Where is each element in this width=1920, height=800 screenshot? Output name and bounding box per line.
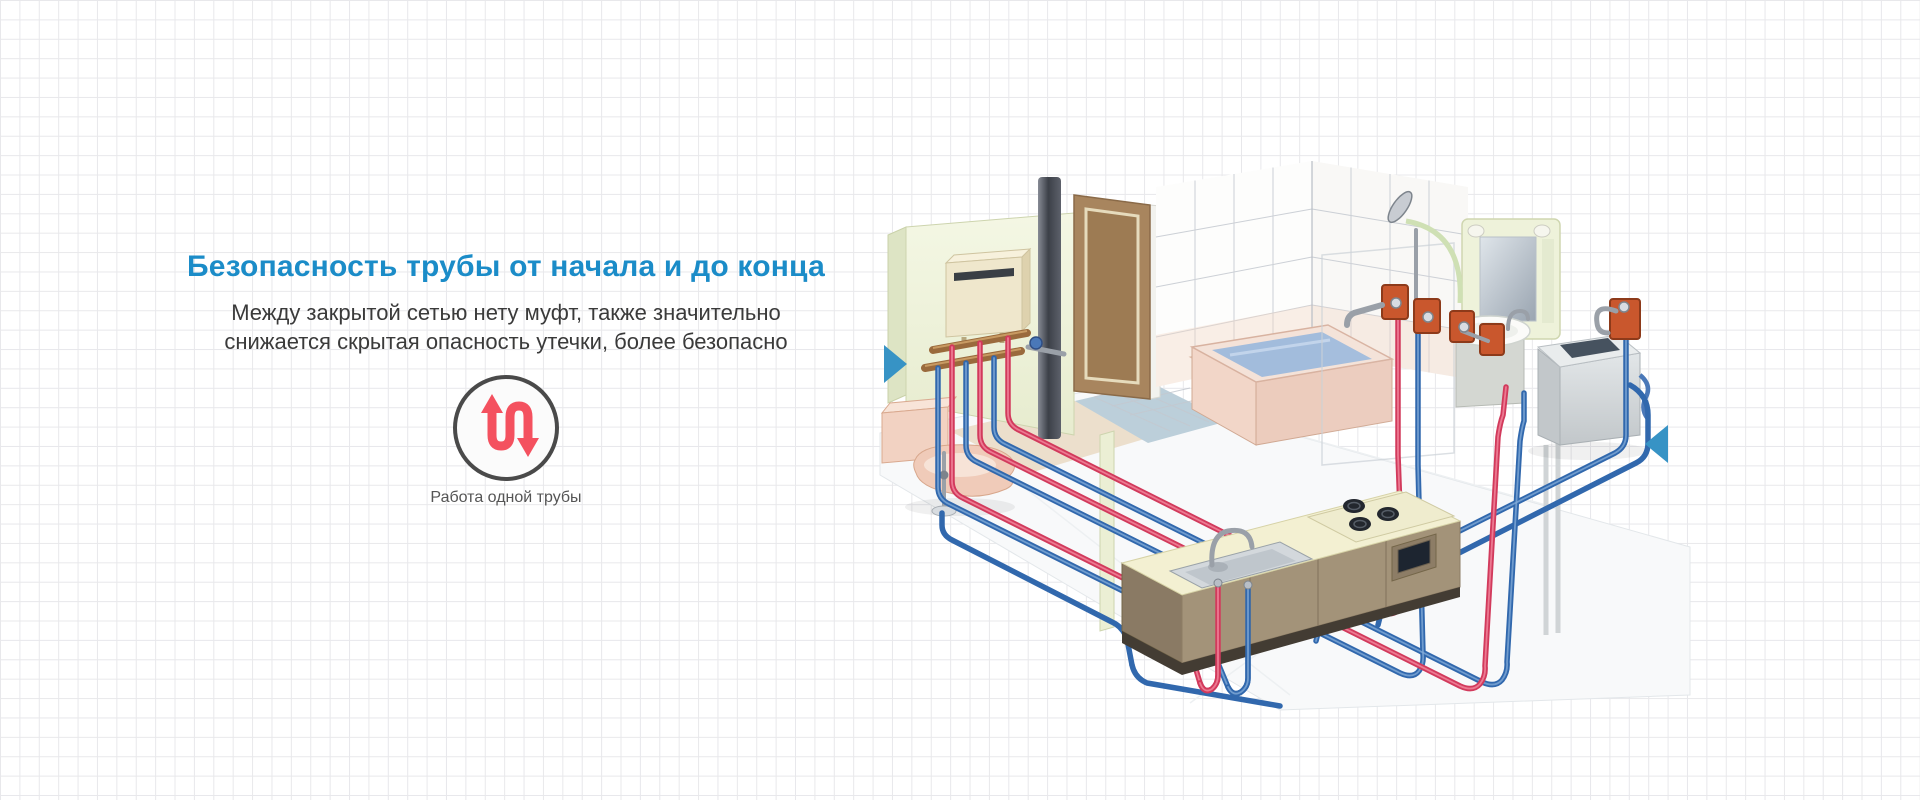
section-subtitle: Между закрытой сетью нету муфт, также зн… [224,298,787,356]
drain-stack-pipe [1038,177,1061,439]
single-pipe-s-flow-icon [451,373,561,483]
subtitle-line-1: Между закрытой сетью нету муфт, также зн… [224,298,787,327]
carousel-prev-arrow[interactable] [884,345,907,383]
carousel-next-arrow[interactable] [1645,425,1668,463]
feature-caption: Работа одной трубы [430,489,581,507]
vanity-lamp [1468,225,1484,237]
water-meter [1030,337,1042,349]
feature-text-block: Безопасность трубы от начала и до конца … [186,248,826,507]
door [1074,195,1160,399]
section-heading: Безопасность трубы от начала и до конца [187,248,825,286]
page-section: { "section": { "heading": "Безопасность … [0,0,1920,800]
glass-partition [1322,243,1454,465]
vanity-lamp [1534,225,1550,237]
plumbing-cutaway-illustration [860,135,1700,715]
subtitle-line-2: снижается скрытая опасность утечки, боле… [224,327,787,356]
mirror [1480,237,1536,321]
washer-tap [1597,299,1640,339]
